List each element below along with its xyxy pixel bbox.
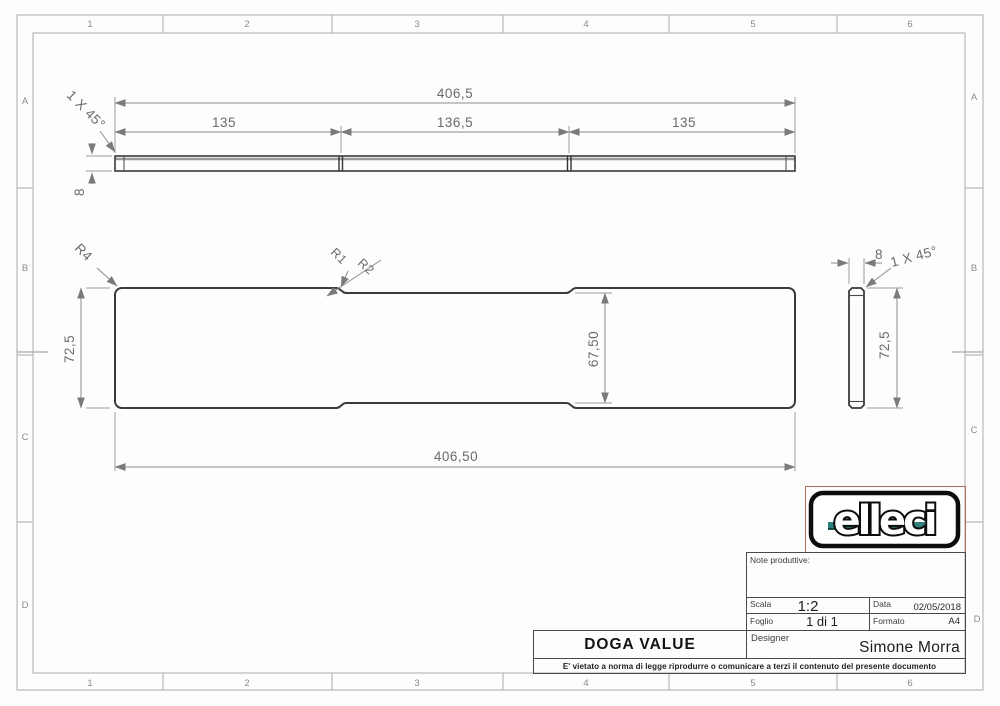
foglio-label: Foglio [750, 616, 773, 626]
grid-row-label: D [22, 600, 29, 611]
logo-cell: elleci [805, 486, 966, 553]
side-view-dimensions [831, 258, 903, 408]
logo-text: elleci [833, 498, 934, 544]
grid-col-label: 5 [750, 19, 755, 30]
scale-data-table: Scala 1:2 Data 02/05/2018 Foglio 1 di 1 … [746, 597, 966, 631]
grid-col-label: 6 [907, 678, 912, 689]
grid-col-label: 2 [244, 678, 249, 689]
front-view-dimensions [81, 260, 795, 471]
dim-side-thickness: 8 [875, 247, 883, 262]
grid-row-label: B [971, 263, 977, 274]
formato-value: A4 [948, 616, 960, 627]
drawing-title-cell: DOGA VALUE [533, 630, 747, 659]
top-view-outline [115, 156, 795, 171]
grid-row-label: A [971, 92, 978, 103]
side-view-dimension-text: 8 1 X 45° 72,5 [875, 243, 939, 359]
grid-row-label: D [974, 614, 981, 625]
grid-row-label: B [22, 263, 28, 274]
notes-label: Note produttive: [750, 555, 810, 565]
dim-top-total: 406,5 [437, 86, 473, 101]
grid-col-label: 4 [583, 678, 588, 689]
grid-row-label: C [22, 432, 29, 443]
dim-top-thickness: 8 [72, 188, 87, 196]
dim-top-seg-right: 135 [672, 115, 696, 130]
dim-front-total-width: 406,50 [434, 449, 478, 464]
grid-col-label: 5 [750, 678, 755, 689]
dim-top-chamfer: 1 X 45° [64, 88, 109, 133]
dim-front-r4: R4 [72, 241, 96, 265]
grid-col-label: 4 [583, 19, 588, 30]
dim-front-height: 72,5 [62, 335, 77, 363]
designer-value: Simone Morra [859, 639, 960, 657]
grid-col-label: 3 [414, 19, 419, 30]
grid-col-label: 1 [87, 19, 92, 30]
grid-row-label: C [971, 425, 978, 436]
dim-top-seg-left: 135 [212, 115, 236, 130]
dim-front-r2: R2 [355, 256, 377, 278]
front-view-dimension-text: 72,5 67,50 406,50 R4 R1 R2 [62, 241, 601, 464]
drawing-sheet: 1 2 3 4 5 6 1 2 3 4 5 6 A B C D A B C D [0, 0, 1000, 706]
data-label: Data [873, 599, 891, 609]
formato-label: Formato [873, 616, 905, 626]
foglio-value: 1 di 1 [777, 614, 867, 629]
front-view-outline [115, 288, 795, 408]
dim-front-r1: R1 [328, 245, 350, 267]
dim-top-seg-mid: 136,5 [437, 115, 473, 130]
dim-front-notch-height: 67,50 [586, 331, 601, 367]
scala-value: 1:2 [747, 598, 869, 615]
production-notes-cell: Note produttive: [746, 552, 966, 598]
grid-col-label: 3 [414, 678, 419, 689]
grid-row-label: A [22, 96, 29, 107]
table-vertical-divider [869, 598, 870, 630]
side-view-outline [849, 288, 864, 408]
grid-col-label: 2 [244, 19, 249, 30]
designer-label: Designer [751, 633, 789, 644]
designer-cell: Designer Simone Morra [746, 630, 966, 659]
disclaimer-text: E' vietato a norma di legge riprodurre o… [563, 662, 936, 671]
disclaimer-strip: E' vietato a norma di legge riprodurre o… [533, 658, 966, 674]
grid-col-label: 1 [87, 678, 92, 689]
elleci-logo: elleci [806, 487, 965, 552]
grid-col-label: 6 [907, 19, 912, 30]
drawing-title: DOGA VALUE [584, 636, 696, 654]
data-value: 02/05/2018 [913, 602, 961, 613]
dim-side-chamfer: 1 X 45° [889, 243, 939, 270]
dim-side-height: 72,5 [877, 331, 892, 359]
